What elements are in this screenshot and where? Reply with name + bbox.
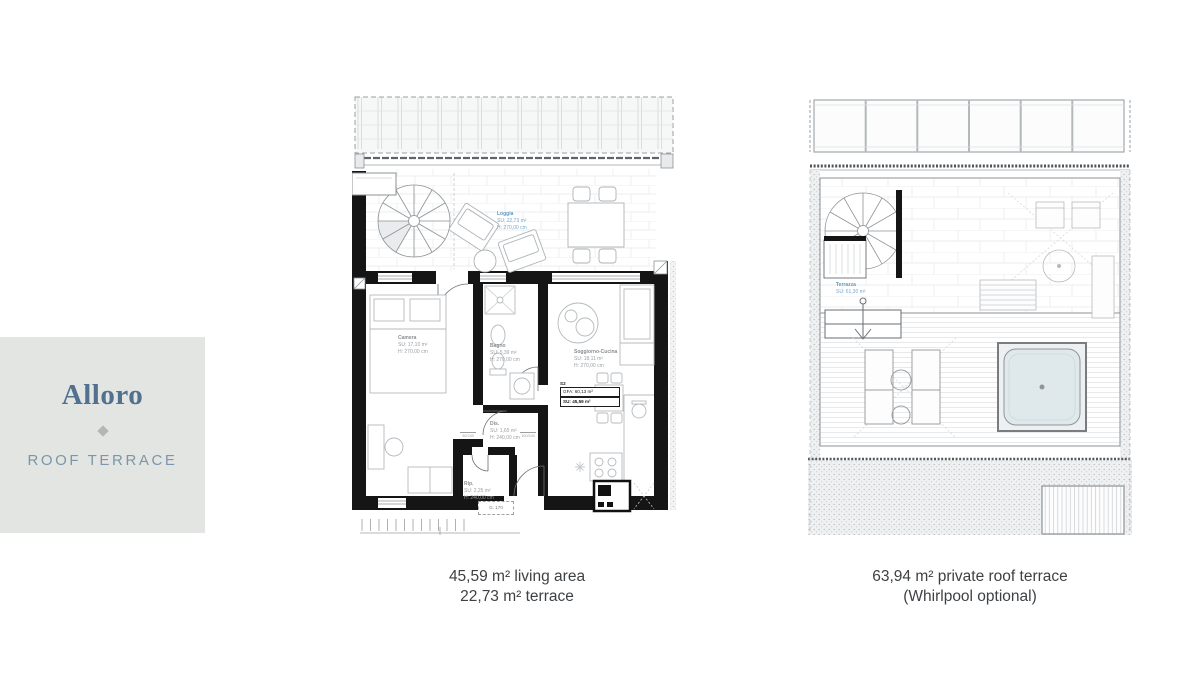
walkway-grating xyxy=(1042,486,1124,534)
project-title: Alloro xyxy=(62,379,143,412)
roof-terrace-caption: 63,94 m² private roof terrace (Whirlpool… xyxy=(808,567,1132,606)
pergola-panels xyxy=(810,100,1130,152)
caption-living-area: 45,59 m² living area xyxy=(352,567,682,587)
brochure-page: Alloro ROOF TERRACE xyxy=(0,0,1200,674)
caption-whirlpool-note: (Whirlpool optional) xyxy=(808,587,1132,607)
room-label-loggia: Loggia SU: 22,73 m² H: 270,00 cm xyxy=(497,211,527,231)
dimension-ticks xyxy=(360,519,520,535)
floor-plan-drawing: Loggia SU: 22,73 m² H: 270,00 cm Camera … xyxy=(352,95,682,535)
room-label-disimpegno: Dis. SU: 1,65 m² H: 240,00 cm xyxy=(490,421,520,441)
door-size-tag: G. 170 xyxy=(478,501,514,515)
pergola-canopy xyxy=(355,97,673,153)
diamond-divider-icon xyxy=(97,425,108,436)
floor-plan-svg xyxy=(352,95,682,535)
room-label-camera: Camera SU: 17,10 m² H: 270,00 cm xyxy=(398,335,428,355)
room-label-terrazza: Terrazza SU: 61,30 m² xyxy=(836,282,865,296)
terrace-railing xyxy=(355,154,673,168)
whirlpool xyxy=(998,343,1086,431)
roof-terrace-svg xyxy=(808,98,1132,535)
project-info-card: Alloro ROOF TERRACE xyxy=(0,337,205,533)
caption-terrace-area: 22,73 m² terrace xyxy=(352,587,682,607)
room-label-bagno: Bagno SU: 5,39 m² H: 270,00 cm xyxy=(490,343,520,363)
unit-summary-box: S2 GFA: 60,13 m² SU: 45,59 m² xyxy=(560,381,620,407)
dimension-mark: 100/240 xyxy=(520,432,536,438)
floor-plan-caption: 45,59 m² living area 22,73 m² terrace xyxy=(352,567,682,606)
caption-roof-terrace-area: 63,94 m² private roof terrace xyxy=(808,567,1132,587)
dimension-mark: 90/240 xyxy=(460,432,476,438)
roof-terrace-drawing: Terrazza SU: 61,30 m² xyxy=(808,98,1132,535)
plan-subtitle: ROOF TERRACE xyxy=(27,452,177,469)
room-label-ripostiglio: Rip. SU: 2,25 m² H: 240,00 cm xyxy=(464,481,494,501)
room-label-soggiorno-cucina: Soggiorno-Cucina SU: 18,11 m² H: 270,00 … xyxy=(574,349,617,369)
